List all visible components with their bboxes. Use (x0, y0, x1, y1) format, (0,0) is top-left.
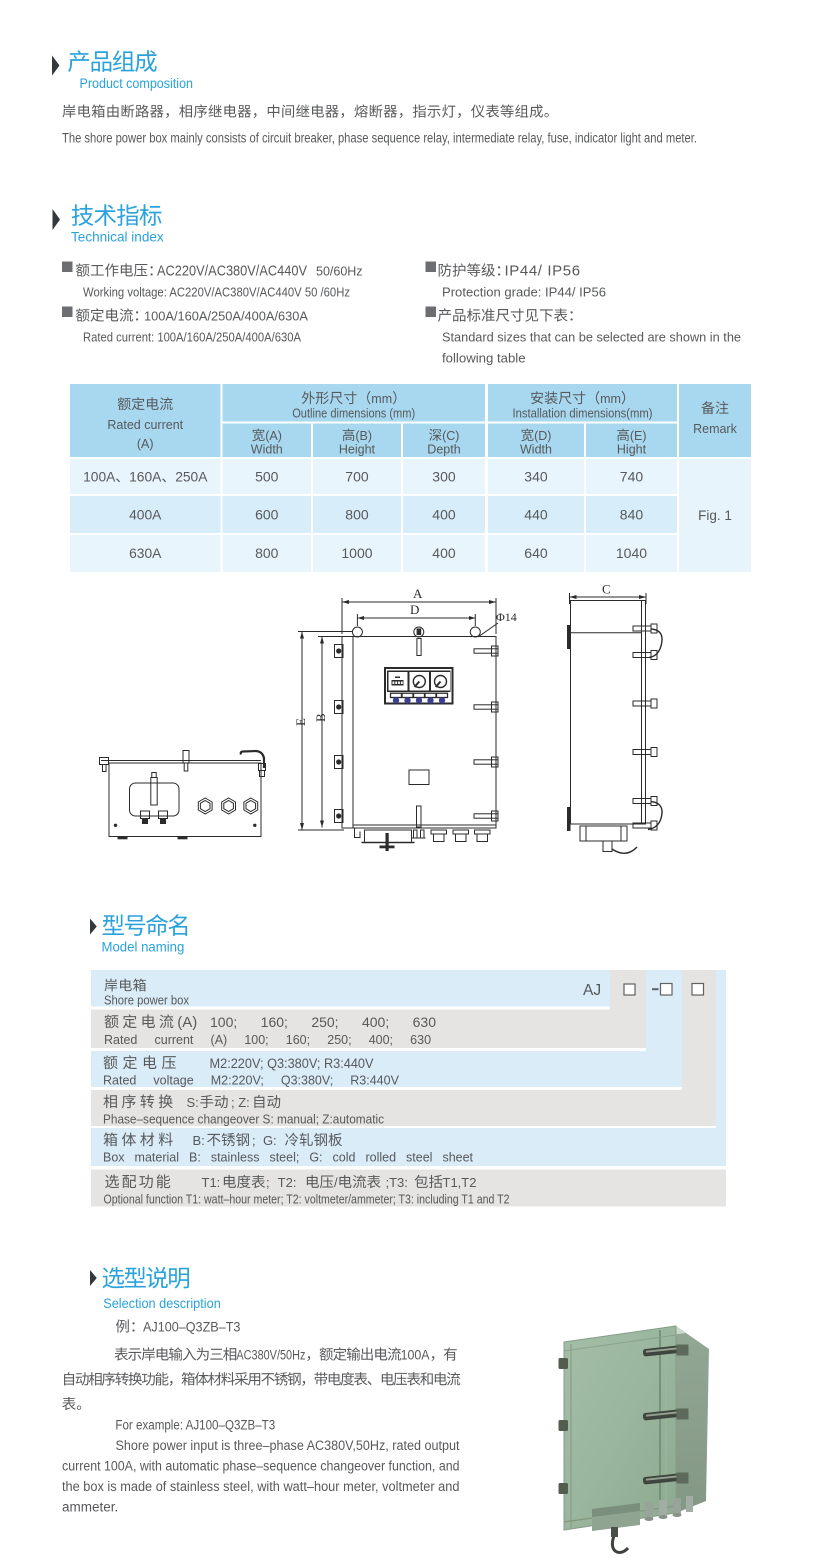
svg-text:Hight: Hight (617, 443, 647, 457)
svg-text:100A/160A/250A/400A/630A: 100A/160A/250A/400A/630A (144, 309, 308, 324)
svg-text:D: D (410, 602, 419, 617)
svg-text:; G:: ; G: (252, 1133, 277, 1148)
svg-text:B: B (313, 713, 328, 722)
svg-text:800: 800 (345, 507, 369, 523)
svg-text:600: 600 (255, 507, 279, 523)
svg-text:Remark: Remark (693, 422, 738, 436)
svg-text:(B): (B) (355, 429, 372, 443)
svg-text:Phase–sequence changeover S:: Phase–sequence changeover S: manual; Z:a… (103, 1113, 384, 1127)
svg-text:Product composition: Product composition (80, 75, 194, 91)
svg-text:AC380V/50Hz: AC380V/50Hz (236, 1348, 305, 1363)
svg-text:400A: 400A (129, 508, 162, 523)
svg-text:;T3:: ;T3: (386, 1175, 408, 1190)
svg-text:800: 800 (255, 545, 279, 561)
svg-text:Model naming: Model naming (102, 939, 185, 955)
svg-text:250A: 250A (175, 470, 208, 485)
svg-text:AC220V/AC380V/AC440V: AC220V/AC380V/AC440V (157, 263, 307, 280)
svg-text:/: / (334, 1175, 338, 1190)
svg-text:A: A (413, 586, 423, 601)
svg-text:; Z:: ; Z: (231, 1095, 250, 1110)
svg-text:640: 640 (524, 545, 548, 561)
svg-text:current 100A, with automatic p: current 100A, with automatic phase–seque… (62, 1459, 460, 1474)
svg-text:(A): (A) (177, 1014, 197, 1031)
svg-text:840: 840 (620, 507, 644, 523)
svg-text:400: 400 (432, 507, 456, 523)
svg-text:; T2:: ; T2: (266, 1175, 296, 1190)
svg-text:ammeter.: ammeter. (62, 1500, 118, 1515)
svg-text:440: 440 (524, 507, 548, 523)
svg-text:(C): (C) (442, 429, 459, 443)
svg-text:Shore power input is three–pha: Shore power input is three–phase AC380V,… (116, 1438, 460, 1453)
svg-text:(D): (D) (534, 429, 551, 443)
svg-text:Fig. 1: Fig. 1 (698, 508, 732, 523)
svg-text:E: E (293, 718, 308, 726)
svg-text:following table: following table (442, 351, 526, 366)
svg-text:Selection description: Selection description (103, 1295, 221, 1311)
svg-text:340: 340 (524, 469, 548, 485)
svg-text:Outline dimensions (mm): Outline dimensions (mm) (292, 407, 415, 421)
svg-text:C: C (602, 582, 611, 597)
svg-text:(A): (A) (265, 429, 282, 443)
svg-text:630A: 630A (129, 546, 162, 561)
svg-text:Shore power box: Shore power box (104, 992, 189, 1007)
svg-text:500: 500 (255, 469, 279, 485)
svg-text:1000: 1000 (341, 545, 372, 561)
svg-text:Rated current: Rated current (107, 418, 183, 432)
svg-text:Technical index: Technical index (71, 229, 164, 245)
svg-text:700: 700 (345, 469, 369, 485)
svg-text:M2:220V; Q3:380V; R3:440V: M2:220V; Q3:380V; R3:440V (210, 1056, 374, 1071)
svg-text:mm: mm (371, 392, 392, 406)
svg-text:Width: Width (520, 443, 552, 457)
svg-text:100; 160; 250; 400; 630: 100; 160; 250; 400; 630 (210, 1014, 436, 1030)
svg-text:T1:: T1: (202, 1175, 221, 1190)
svg-text:(E): (E) (630, 429, 647, 443)
svg-text:Rated current (A) 100; 160; 25: Rated current (A) 100; 160; 250; 400; 63… (104, 1033, 431, 1047)
svg-text:400: 400 (432, 545, 456, 561)
svg-text:S:: S: (187, 1095, 199, 1110)
svg-text:AJ: AJ (583, 982, 601, 999)
svg-text:1040: 1040 (616, 545, 647, 561)
svg-text:Box material B: stainless ste: Box material B: stainless steel; G: cold… (103, 1151, 474, 1165)
svg-text:300: 300 (432, 469, 456, 485)
svg-text:Height: Height (339, 443, 376, 457)
svg-text:Rated current: 100A/160A/250A/: Rated current: 100A/160A/250A/400A/630A (83, 330, 301, 345)
svg-text:IP44/ IP56: IP44/ IP56 (505, 263, 581, 280)
svg-text:Installation dimensions(mm): Installation dimensions(mm) (513, 407, 653, 421)
svg-text:Protection grade: IP44/ IP56: Protection grade: IP44/ IP56 (442, 285, 606, 300)
svg-text:Optional function T1: watt–ho: Optional function T1: watt–hour meter; T… (104, 1193, 510, 1207)
svg-text:(A): (A) (137, 437, 154, 451)
svg-text:Rated voltage M2:220V; Q3:38: Rated voltage M2:220V; Q3:380V; R3:440V (103, 1074, 400, 1088)
svg-text:Working voltage: AC220V/AC380V: Working voltage: AC220V/AC380V/AC440V 50… (83, 285, 350, 300)
svg-text:mm: mm (600, 392, 621, 406)
svg-text:the box is made of stainless s: the box is made of stainless steel, with… (62, 1479, 460, 1494)
svg-text:Standard sizes that can be sel: Standard sizes that can be selected are … (442, 330, 741, 345)
svg-text:B:: B: (193, 1133, 205, 1148)
svg-text:The shore power box mainly con: The shore power box mainly consists of c… (62, 131, 697, 146)
svg-text:100A: 100A (401, 1348, 430, 1363)
svg-text:Depth: Depth (427, 443, 460, 457)
svg-text:Φ14: Φ14 (496, 610, 517, 624)
svg-text:100A: 100A (83, 470, 116, 485)
svg-text:T1,T2: T1,T2 (443, 1175, 477, 1190)
svg-text:For example: AJ100–Q3ZB–T3: For example: AJ100–Q3ZB–T3 (115, 1418, 275, 1433)
svg-text:Width: Width (251, 443, 283, 457)
svg-text:160A: 160A (129, 470, 162, 485)
svg-text:740: 740 (620, 469, 644, 485)
svg-text:50/60Hz: 50/60Hz (316, 265, 363, 279)
svg-text:AJ100–Q3ZB–T3: AJ100–Q3ZB–T3 (143, 1319, 241, 1335)
